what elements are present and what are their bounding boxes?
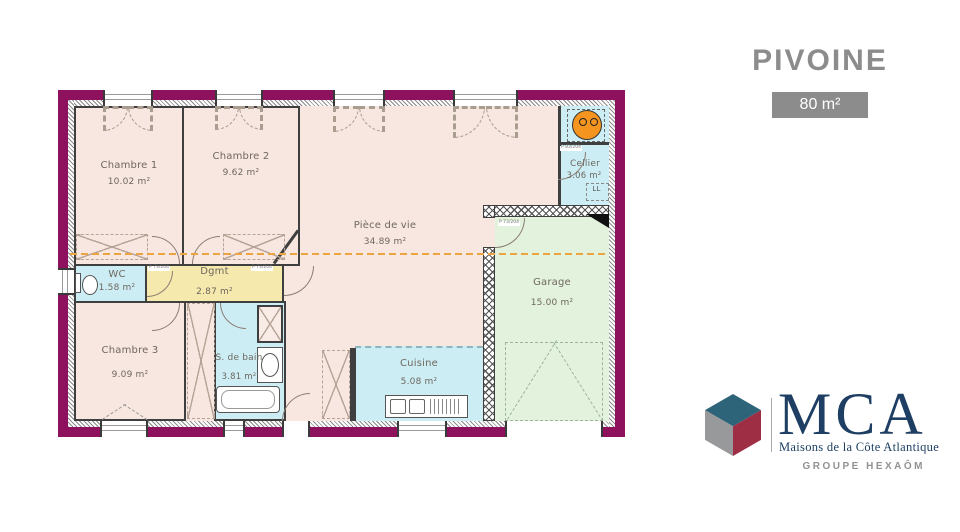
room-area: 10.02 m² (76, 178, 182, 188)
garage-door-outline (505, 342, 603, 421)
window-cuisine (397, 421, 447, 437)
brand-group: GROUPE HEXAÔM (770, 461, 925, 472)
water-heater-dot (590, 118, 598, 126)
door-tag: P 83/204 (560, 146, 582, 151)
hatch-strip-right (609, 100, 615, 427)
room-area: 15.00 m² (495, 299, 609, 309)
garage-wall-left (483, 205, 495, 218)
door-tag: P 73/204 (498, 221, 520, 226)
kitchen-drainer (430, 399, 462, 414)
french-door-1 (333, 90, 385, 106)
door-tag: P 73/204 (251, 266, 273, 271)
washer-label: LL (586, 186, 607, 194)
french-door-2 (453, 90, 518, 106)
wall-segment (350, 348, 356, 421)
window-bathroom (223, 421, 245, 437)
entry-door-gap (282, 421, 310, 437)
floorplan: Chambre 1 10.02 m² Chambre 2 9.62 m² Piè… (58, 90, 625, 437)
room-area: 9.62 m² (184, 169, 298, 179)
room-label: Garage (495, 277, 609, 288)
room-label: Chambre 2 (184, 151, 298, 162)
room-label: Cuisine (359, 358, 479, 369)
garage-wall-left (483, 247, 495, 421)
garage-door-gap (505, 421, 603, 437)
room-area: 5.08 m² (359, 378, 479, 388)
room-area: 3.06 m² (559, 172, 609, 181)
brand-name: MCA (778, 384, 927, 444)
water-heater (572, 110, 602, 140)
room-area: 3.81 m² (209, 373, 269, 382)
kitchen-sink-basin (390, 399, 406, 414)
room-label: Pièce de vie (325, 220, 445, 231)
floorplan-sheet: PIVOINE 80 m² (0, 0, 960, 532)
water-heater-dot (579, 118, 587, 126)
exterior-wall-left (58, 90, 68, 437)
room-area: 1.58 m² (86, 284, 148, 294)
toilet-tank (75, 273, 81, 293)
exterior-wall-right (615, 90, 625, 437)
closet-bathroom (257, 305, 283, 343)
area-badge: 80 m² (772, 92, 868, 118)
room-label: Chambre 1 (76, 160, 182, 171)
window-wc (58, 268, 74, 295)
room-area: 34.89 m² (325, 238, 445, 248)
kitchen-sink-basin (409, 399, 425, 414)
window-chambre3 (100, 421, 148, 437)
brand-tagline: Maisons de la Côte Atlantique (779, 440, 939, 455)
plan-title: PIVOINE (740, 44, 900, 78)
room-label: WC (86, 269, 148, 280)
window-chambre2 (215, 90, 263, 106)
closet-chambre2 (223, 234, 285, 260)
room-area: 2.87 m² (147, 288, 282, 298)
door-tag: P 73/204 (148, 266, 170, 271)
closet-chambre1 (76, 234, 148, 260)
room-label: S. de bain (209, 354, 269, 364)
window-chambre1 (103, 90, 153, 106)
logo-divider (771, 398, 772, 452)
room-label: Cellier (561, 160, 609, 170)
section-line (70, 253, 609, 255)
bathtub-inner (221, 390, 275, 409)
room-label: Chambre 3 (76, 345, 184, 356)
closet-entry (322, 350, 350, 419)
room-area: 9.09 m² (76, 371, 184, 381)
